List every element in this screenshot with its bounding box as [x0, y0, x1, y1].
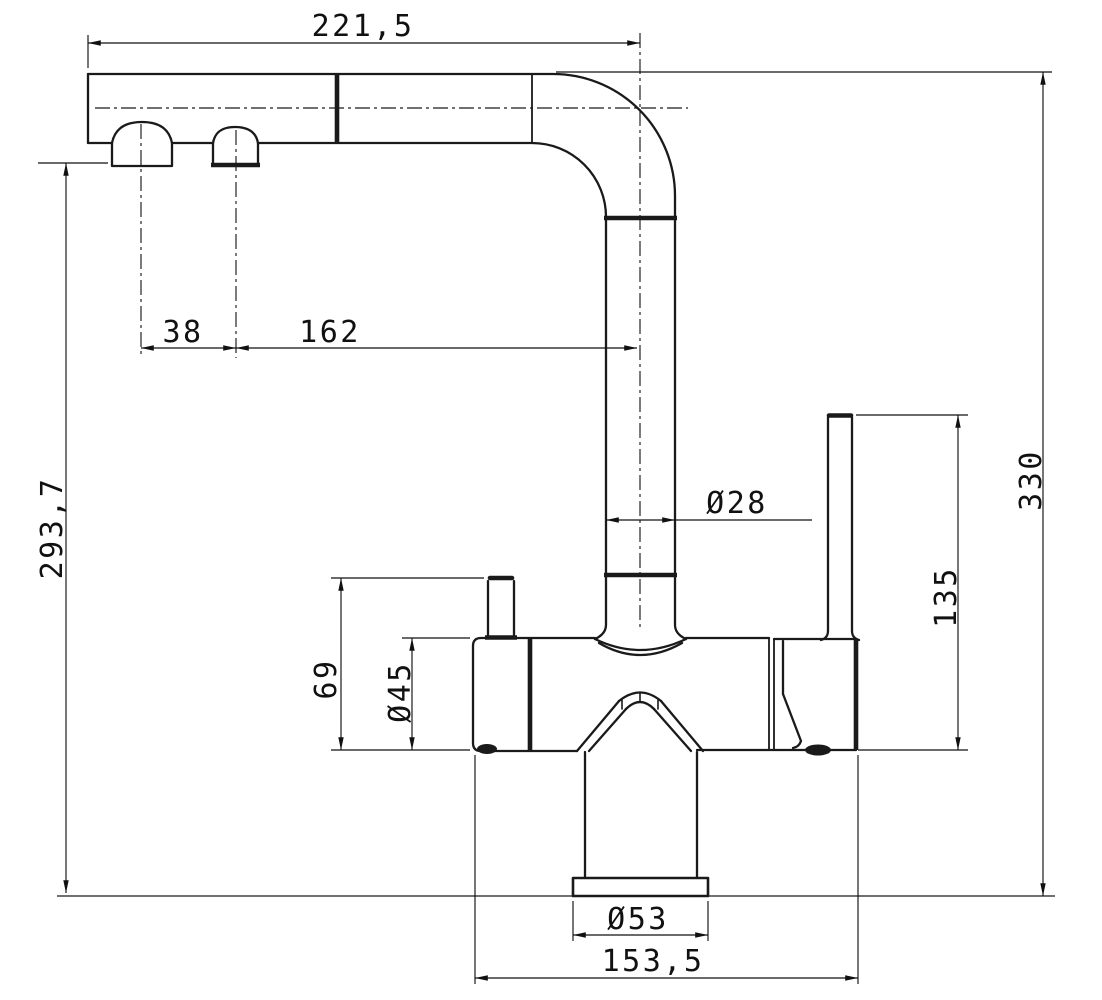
thick-seams [211, 75, 856, 752]
dim-label-spout-underside-height: 293,7 [35, 477, 70, 580]
dim-label-nozzle-spacing: 38 [162, 315, 203, 350]
faucet-technical-drawing: 221,5 38 162 Ø28 Ø53 153,5 330 135 293,7… [0, 0, 1102, 1000]
outlet-cone-right-outer [661, 701, 703, 751]
left-set-screw [477, 744, 497, 754]
technical-drawing-sheet: 221,5 38 162 Ø28 Ø53 153,5 330 135 293,7… [0, 0, 1102, 1000]
elbow-inner-arc [532, 143, 606, 217]
outlet-cone-cap-inner [626, 702, 654, 709]
spout-top-and-elbow-outer [88, 74, 675, 218]
dimension-labels: 221,5 38 162 Ø28 Ø53 153,5 330 135 293,7… [35, 9, 1049, 979]
dim-label-body-diameter: Ø45 [383, 661, 418, 723]
body-left-cap [473, 638, 595, 751]
dim-label-handle-height: 135 [929, 566, 964, 628]
dim-label-knob-height: 69 [309, 658, 344, 699]
base-flange [573, 878, 708, 896]
base-column [585, 752, 697, 878]
dim-label-body-length: 153,5 [602, 944, 705, 979]
handle-base-edge [783, 641, 801, 748]
aerator-housing [112, 143, 172, 166]
extension-lines [38, 35, 1052, 984]
knob-sides [488, 581, 514, 636]
body-separator-rings [769, 638, 774, 750]
dim-label-nozzle-to-axis: 162 [299, 315, 361, 350]
handle-rod [821, 417, 859, 640]
dim-label-total-height: 330 [1014, 449, 1049, 511]
outlet-cone-left-outer [577, 701, 619, 751]
aerator-dome [112, 122, 172, 143]
dim-label-riser-diameter: Ø28 [706, 486, 768, 521]
dim-label-base-diameter: Ø53 [607, 902, 669, 937]
handle-pivot-pad [805, 745, 831, 756]
dimension-lines [66, 43, 1043, 978]
faucet-outline [88, 74, 859, 896]
dim-label-spout-reach: 221,5 [312, 9, 415, 44]
